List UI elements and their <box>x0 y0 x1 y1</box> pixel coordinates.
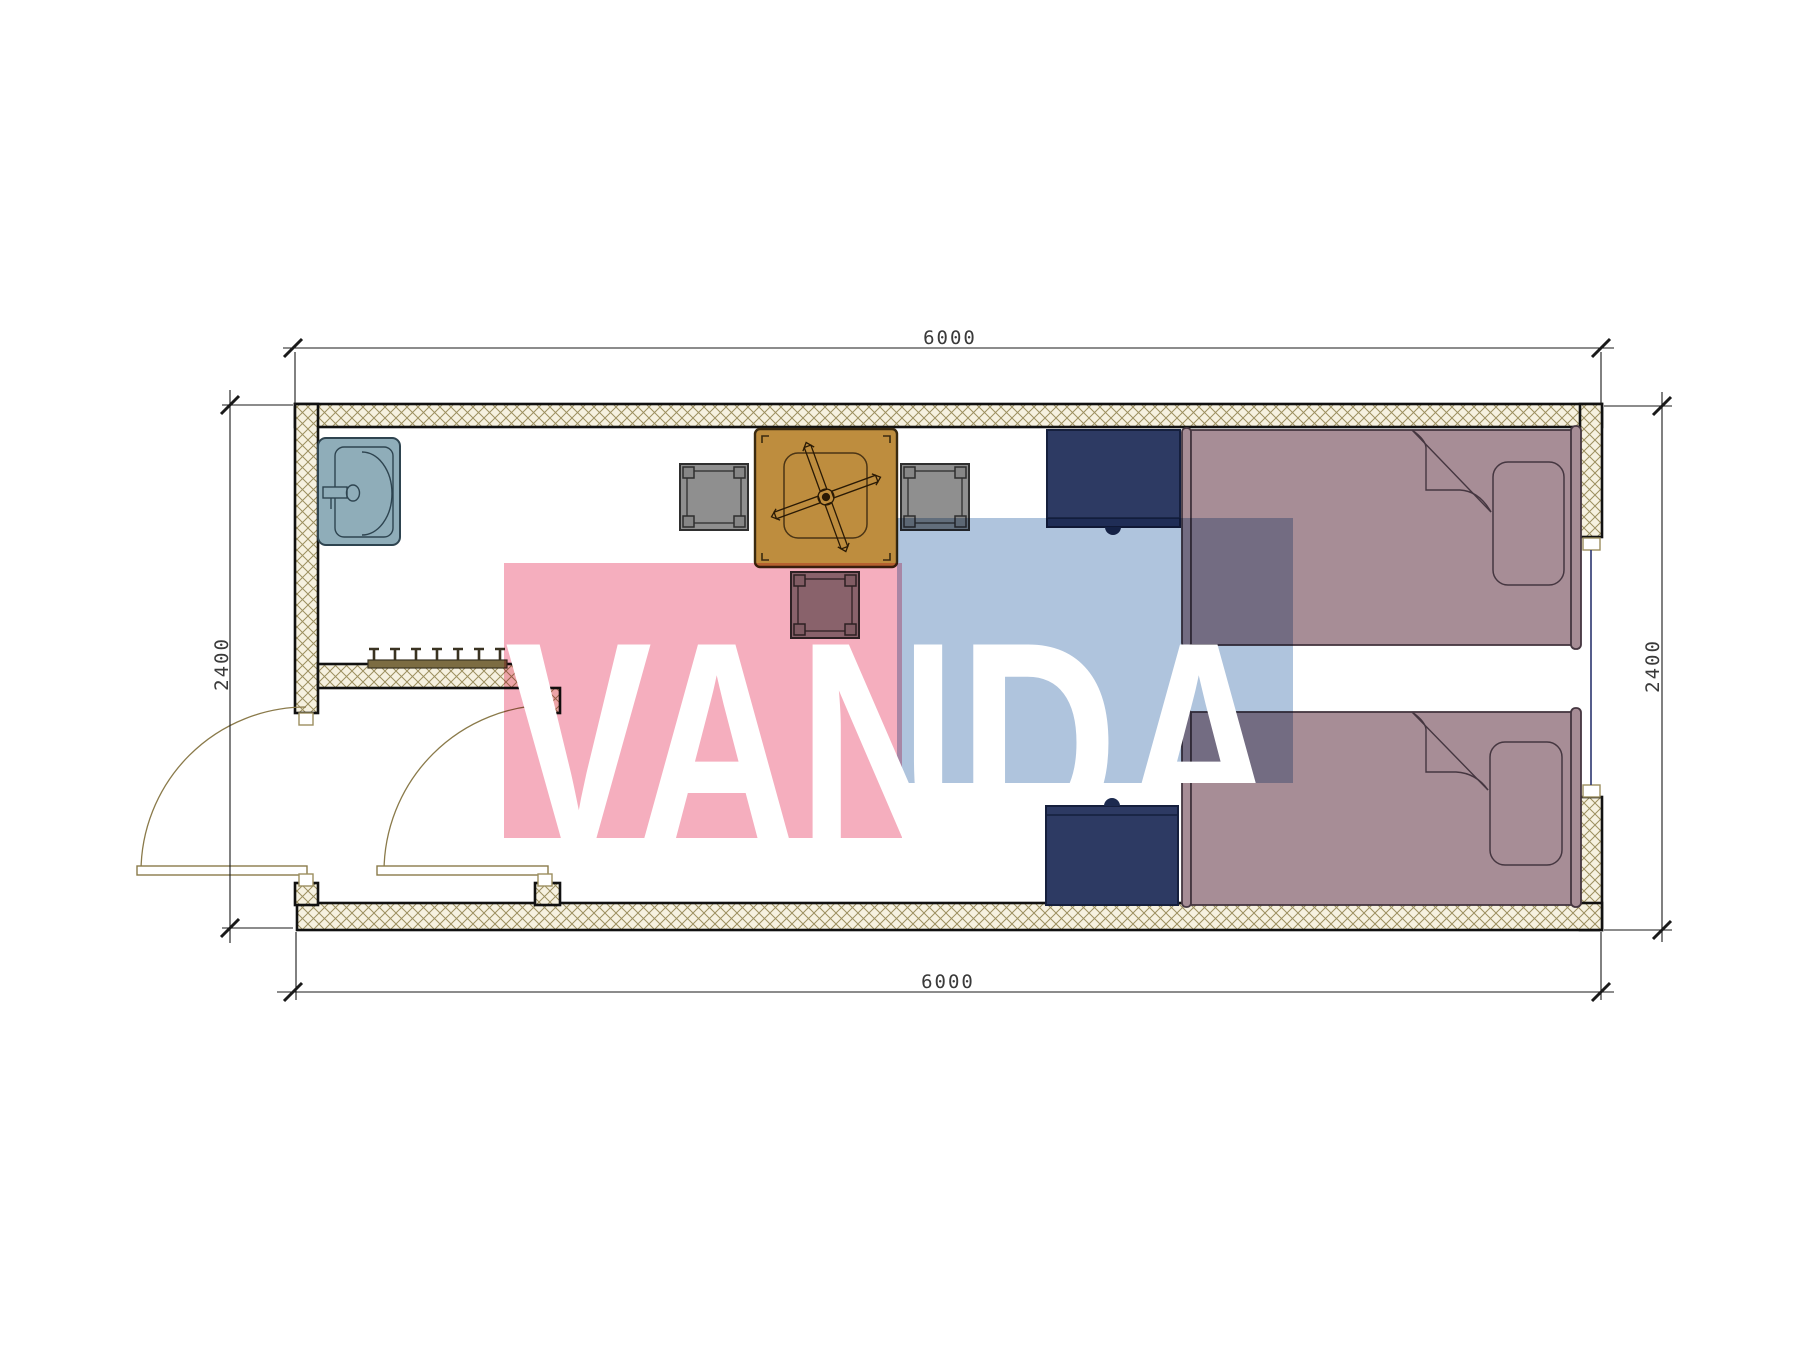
coat-rack-hooks <box>369 649 505 660</box>
window-east <box>1583 538 1600 797</box>
wall-left <box>295 404 318 713</box>
dim-label-right: 2400 <box>1642 639 1664 693</box>
door-jamb <box>538 874 552 886</box>
wall-top <box>295 404 1602 427</box>
sink <box>318 438 400 545</box>
door-west-leaf <box>137 866 307 875</box>
coat-rack <box>368 649 507 668</box>
bed-pillow <box>1490 742 1562 865</box>
window-jamb-top <box>1583 538 1600 550</box>
table <box>752 423 901 572</box>
floor-plan-page: 6000 6000 2400 2400 VANDA <box>0 0 1800 1350</box>
dim-label-top: 6000 <box>923 327 977 349</box>
stool-left <box>680 464 748 530</box>
nightstand-bottom <box>1046 798 1178 905</box>
sink-faucet <box>323 487 347 498</box>
dim-label-left: 2400 <box>211 637 233 691</box>
door-west-arc <box>141 707 306 872</box>
dim-label-bottom: 6000 <box>921 971 975 993</box>
window-jamb-bottom <box>1583 785 1600 797</box>
door-jamb <box>299 874 313 886</box>
doors <box>137 705 552 886</box>
coat-rack-bar <box>368 660 507 668</box>
bed-headboard <box>1571 708 1581 907</box>
door-jamb <box>299 713 313 725</box>
wall-right-upper <box>1580 404 1602 537</box>
bed-pillow <box>1493 462 1564 585</box>
door-inner-leaf <box>377 866 548 875</box>
bed-headboard <box>1571 426 1581 649</box>
nightstand-knob <box>1104 798 1120 806</box>
wall-bottom <box>297 903 1602 930</box>
